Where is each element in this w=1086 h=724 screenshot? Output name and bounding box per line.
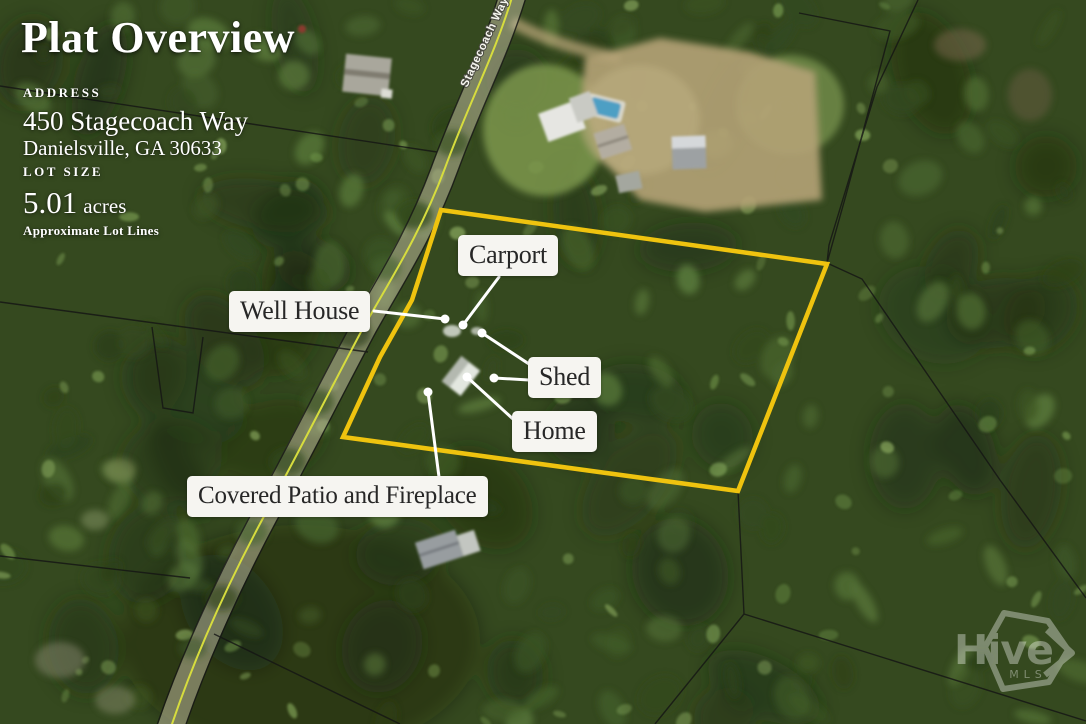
lot-size-unit: acres <box>83 194 126 218</box>
leader-dot-shed-2 <box>490 374 499 383</box>
leader-dot-covered-patio <box>424 388 433 397</box>
watermark-sub: MLS <box>1009 668 1047 681</box>
lot-size-value: 5.01 <box>23 185 77 220</box>
leader-dot-home <box>463 373 472 382</box>
leader-dot-well-house <box>441 315 450 324</box>
lot-size-heading: LOT SIZE <box>23 164 159 180</box>
page-title: Plat Overview <box>21 12 295 63</box>
lot-lines-note: Approximate Lot Lines <box>23 223 159 239</box>
watermark-brand: Hive <box>954 626 1053 674</box>
neighbor-barn <box>671 135 706 169</box>
leader-dot-carport <box>459 321 468 330</box>
neighbor-house-topleft <box>342 54 396 99</box>
lot-size-line: 5.01acres <box>23 185 159 221</box>
callout-well-house: Well House <box>229 291 370 332</box>
address-heading: ADDRESS <box>23 85 248 101</box>
subject-carport-roof <box>443 325 461 337</box>
leader-line-shed-2 <box>494 378 529 380</box>
leader-dot-shed-1 <box>478 329 487 338</box>
callout-covered-patio: Covered Patio and Fireplace <box>187 476 488 517</box>
address-line1: 450 Stagecoach Way <box>23 106 248 136</box>
callout-carport: Carport <box>458 235 558 276</box>
red-roof-dot <box>298 25 306 33</box>
callout-shed: Shed <box>528 357 601 398</box>
callout-home: Home <box>512 411 597 452</box>
address-line2: Danielsville, GA 30633 <box>23 136 248 160</box>
lot-size-block: LOT SIZE 5.01acres Approximate Lot Lines <box>23 164 159 239</box>
address-block: ADDRESS 450 Stagecoach Way Danielsville,… <box>23 85 248 160</box>
plat-overview-image: Stagecoach Way Hive MLS Plat Overview AD… <box>0 0 1086 724</box>
